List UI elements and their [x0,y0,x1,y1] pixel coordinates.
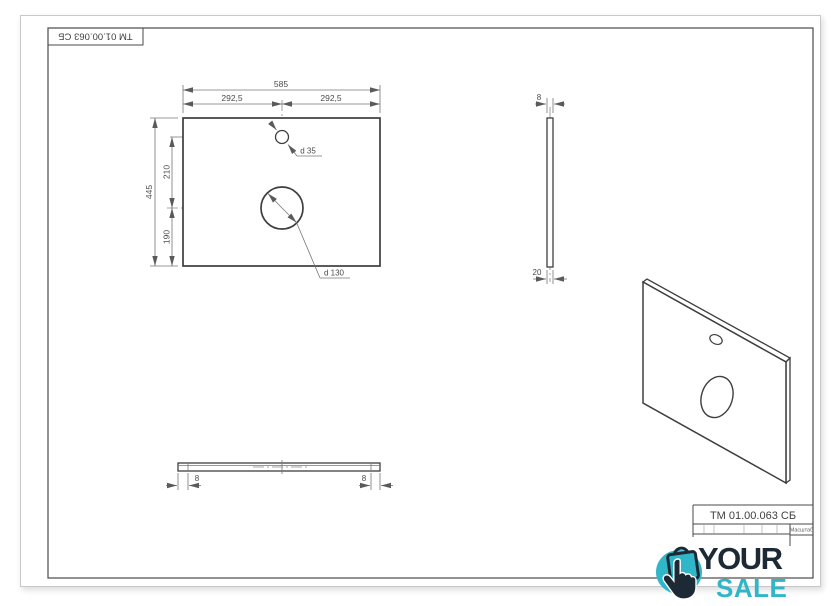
dim-total-width: 585 [274,79,288,89]
dim-bottom-left: 8 [195,474,200,483]
title-block-scale-label: Масштаб [790,528,814,534]
dim-half-right: 292,5 [320,93,342,103]
side-outline [547,118,553,267]
dim-side-depth: 20 [533,268,542,277]
stamp-designation: TM 01.00.063 СБ [58,31,132,42]
dim-hole-distance: 210 [162,165,172,179]
watermark-word-sale: SALE [716,573,787,604]
top-left-stamp: TM 01.00.063 СБ [48,28,143,45]
dim-side-thickness: 8 [537,93,542,102]
label-small-hole: d 35 [300,147,316,156]
iso-front-face [643,282,786,483]
title-block-designation: TM 01.00.063 СБ [710,510,796,522]
front-view: 585 292,5 292,5 445 210 190 d 35 d 130 [144,79,380,278]
dim-half-left: 292,5 [221,93,243,103]
bottom-view: 8 8 [166,460,393,490]
watermark-word-your: YOUR [698,541,782,577]
label-large-hole: d 130 [324,269,345,278]
small-hole [276,131,289,144]
dim-bottom-offset: 190 [162,230,172,244]
dim-total-height: 445 [144,185,154,199]
technical-drawing: TM 01.00.063 СБ 585 292,5 292,5 445 210 … [0,0,840,606]
drawing-frame [48,28,813,578]
side-view: 8 20 [533,93,567,284]
dim-bottom-right: 8 [362,474,367,483]
isometric-view [643,279,790,483]
your-sale-watermark: YOUR SALE [652,536,807,606]
